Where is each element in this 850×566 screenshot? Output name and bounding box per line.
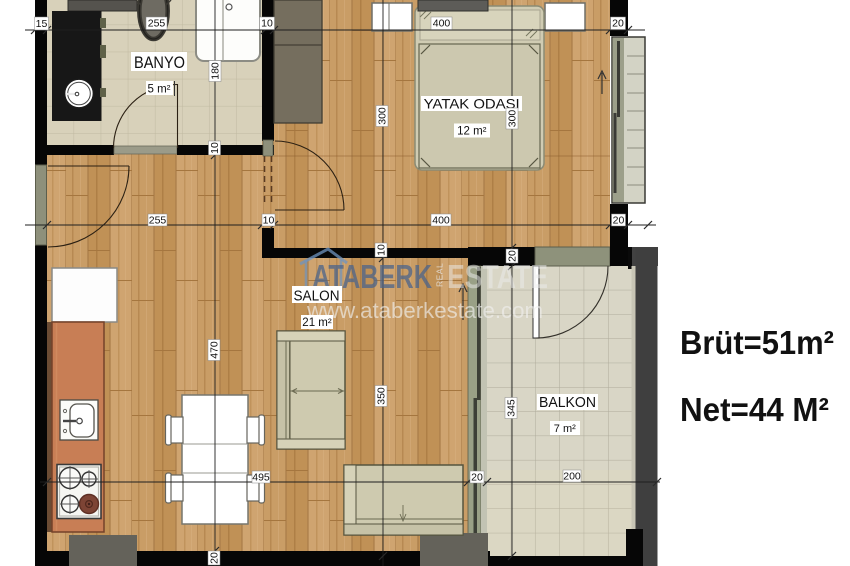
svg-text:400: 400 [432,215,450,227]
svg-text:21 m²: 21 m² [302,317,332,329]
svg-text:300: 300 [507,110,519,128]
svg-text:300: 300 [377,107,389,125]
svg-text:20: 20 [471,472,483,484]
svg-text:255: 255 [149,215,167,227]
svg-text:Net=44 M²: Net=44 M² [680,391,829,428]
svg-text:12 m²: 12 m² [457,126,487,138]
svg-text:10: 10 [263,215,275,227]
svg-text:345: 345 [506,399,518,417]
svg-text:15: 15 [36,18,48,30]
svg-text:Brüt=51m²: Brüt=51m² [680,324,834,361]
svg-text:BALKON: BALKON [539,394,596,411]
svg-text:10: 10 [376,244,388,256]
svg-text:20: 20 [507,250,519,262]
svg-text:255: 255 [148,18,166,30]
svg-text:SALON: SALON [294,288,340,305]
svg-text:350: 350 [376,387,388,405]
svg-text:ESTATE: ESTATE [447,258,548,295]
svg-text:BANYO: BANYO [134,54,185,72]
svg-text:200: 200 [563,471,581,483]
svg-text:180: 180 [210,62,222,80]
svg-text:400: 400 [433,18,451,30]
svg-text:7 m²: 7 m² [554,423,576,435]
svg-text:REAL: REAL [435,263,445,287]
svg-text:495: 495 [252,472,270,484]
svg-text:20: 20 [613,215,625,227]
svg-text:5 m²: 5 m² [148,84,171,96]
svg-text:20: 20 [209,552,221,564]
svg-text:YATAK ODASI: YATAK ODASI [424,96,520,112]
svg-text:10: 10 [209,142,221,154]
svg-text:20: 20 [612,18,624,30]
svg-text:10: 10 [261,18,273,30]
svg-text:470: 470 [209,341,221,359]
